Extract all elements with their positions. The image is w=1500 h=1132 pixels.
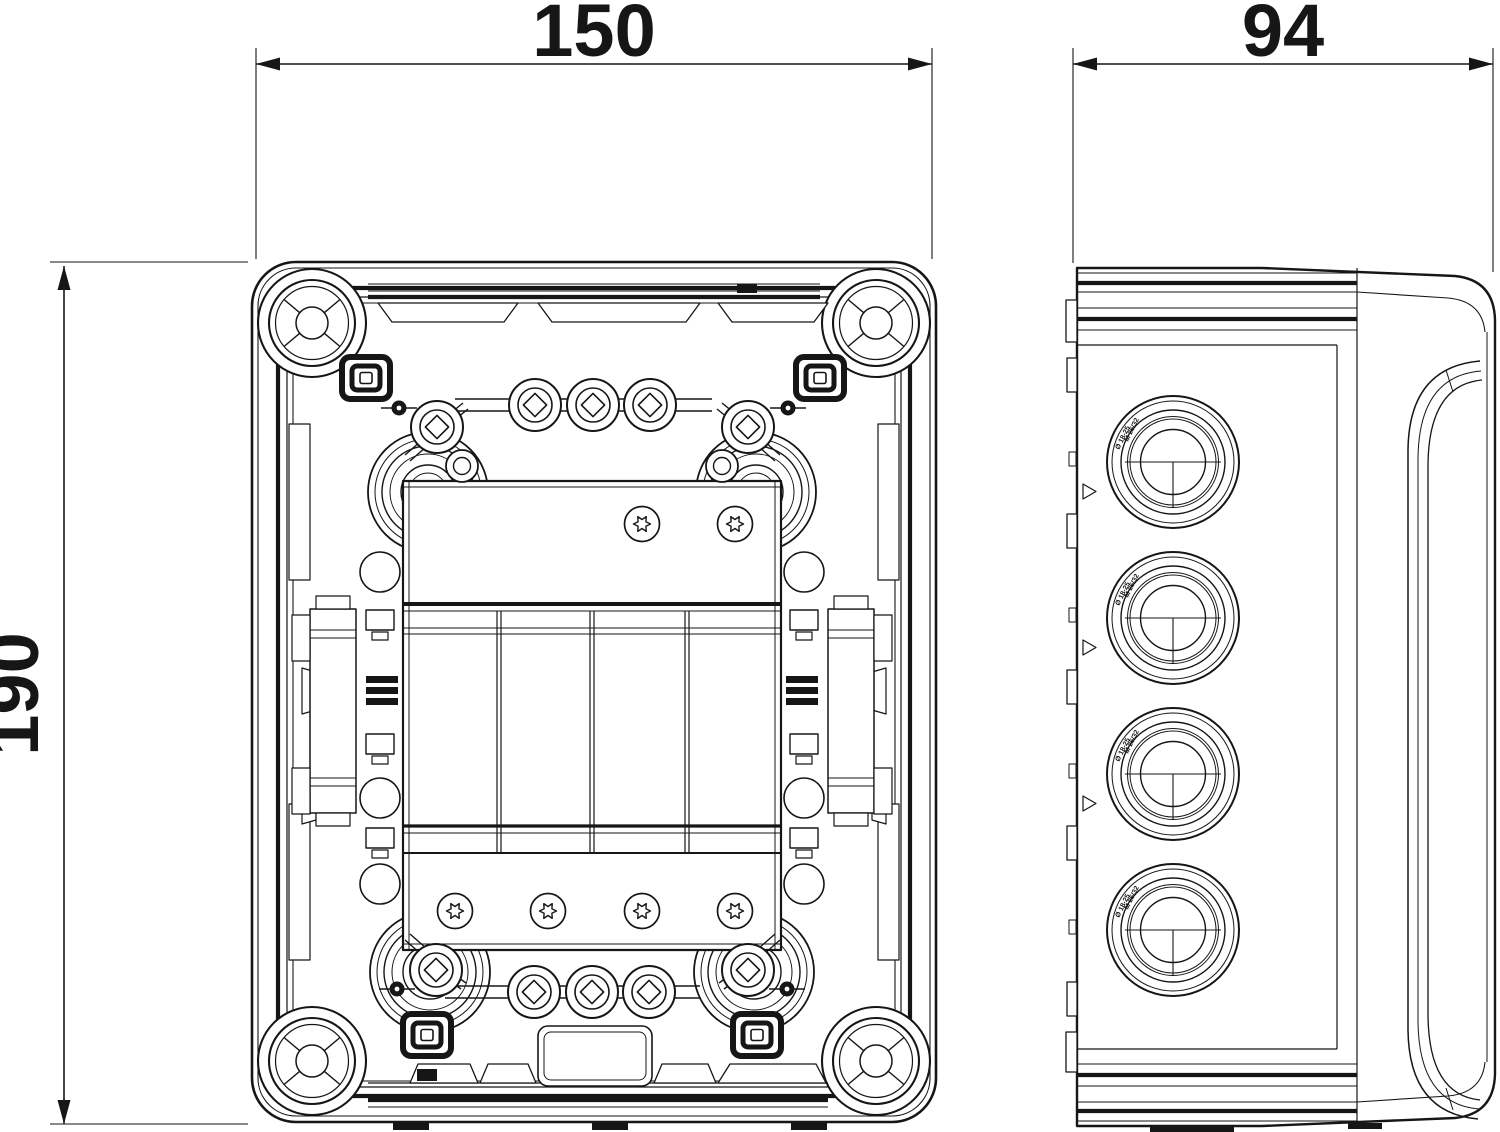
bottom-latch [417, 1069, 437, 1081]
mounting-foot [592, 1122, 628, 1130]
technical-drawing: Ø 18-25 M 25/32 150 94 190 [0, 0, 1500, 1132]
mounting-foot [1150, 1126, 1234, 1132]
mounting-foot [393, 1122, 429, 1130]
dimension-width-150: 150 [256, 0, 932, 259]
dimension-depth-94: 94 [1073, 0, 1493, 272]
mounting-foot [1348, 1123, 1382, 1129]
dimension-arrow-icon [1073, 58, 1097, 71]
dimension-arrow-icon [58, 266, 71, 290]
dimension-arrow-icon [58, 1100, 71, 1124]
dimension-arrow-icon [256, 58, 280, 71]
bottom-cutout [538, 1026, 652, 1086]
height-dimension-label: 190 [0, 632, 54, 755]
side-outline [1077, 268, 1495, 1126]
mounting-foot [791, 1122, 827, 1130]
wall-tabs [1066, 300, 1077, 1072]
top-edge-tab [737, 284, 757, 293]
dimension-height-190: 190 [0, 262, 248, 1124]
width-dimension-label: 150 [532, 0, 655, 72]
front-view [252, 262, 936, 1130]
side-view [1066, 268, 1495, 1132]
terminal-block [403, 481, 781, 950]
depth-dimension-label: 94 [1242, 0, 1324, 72]
dimension-arrow-icon [1469, 58, 1493, 71]
dimension-arrow-icon [908, 58, 932, 71]
